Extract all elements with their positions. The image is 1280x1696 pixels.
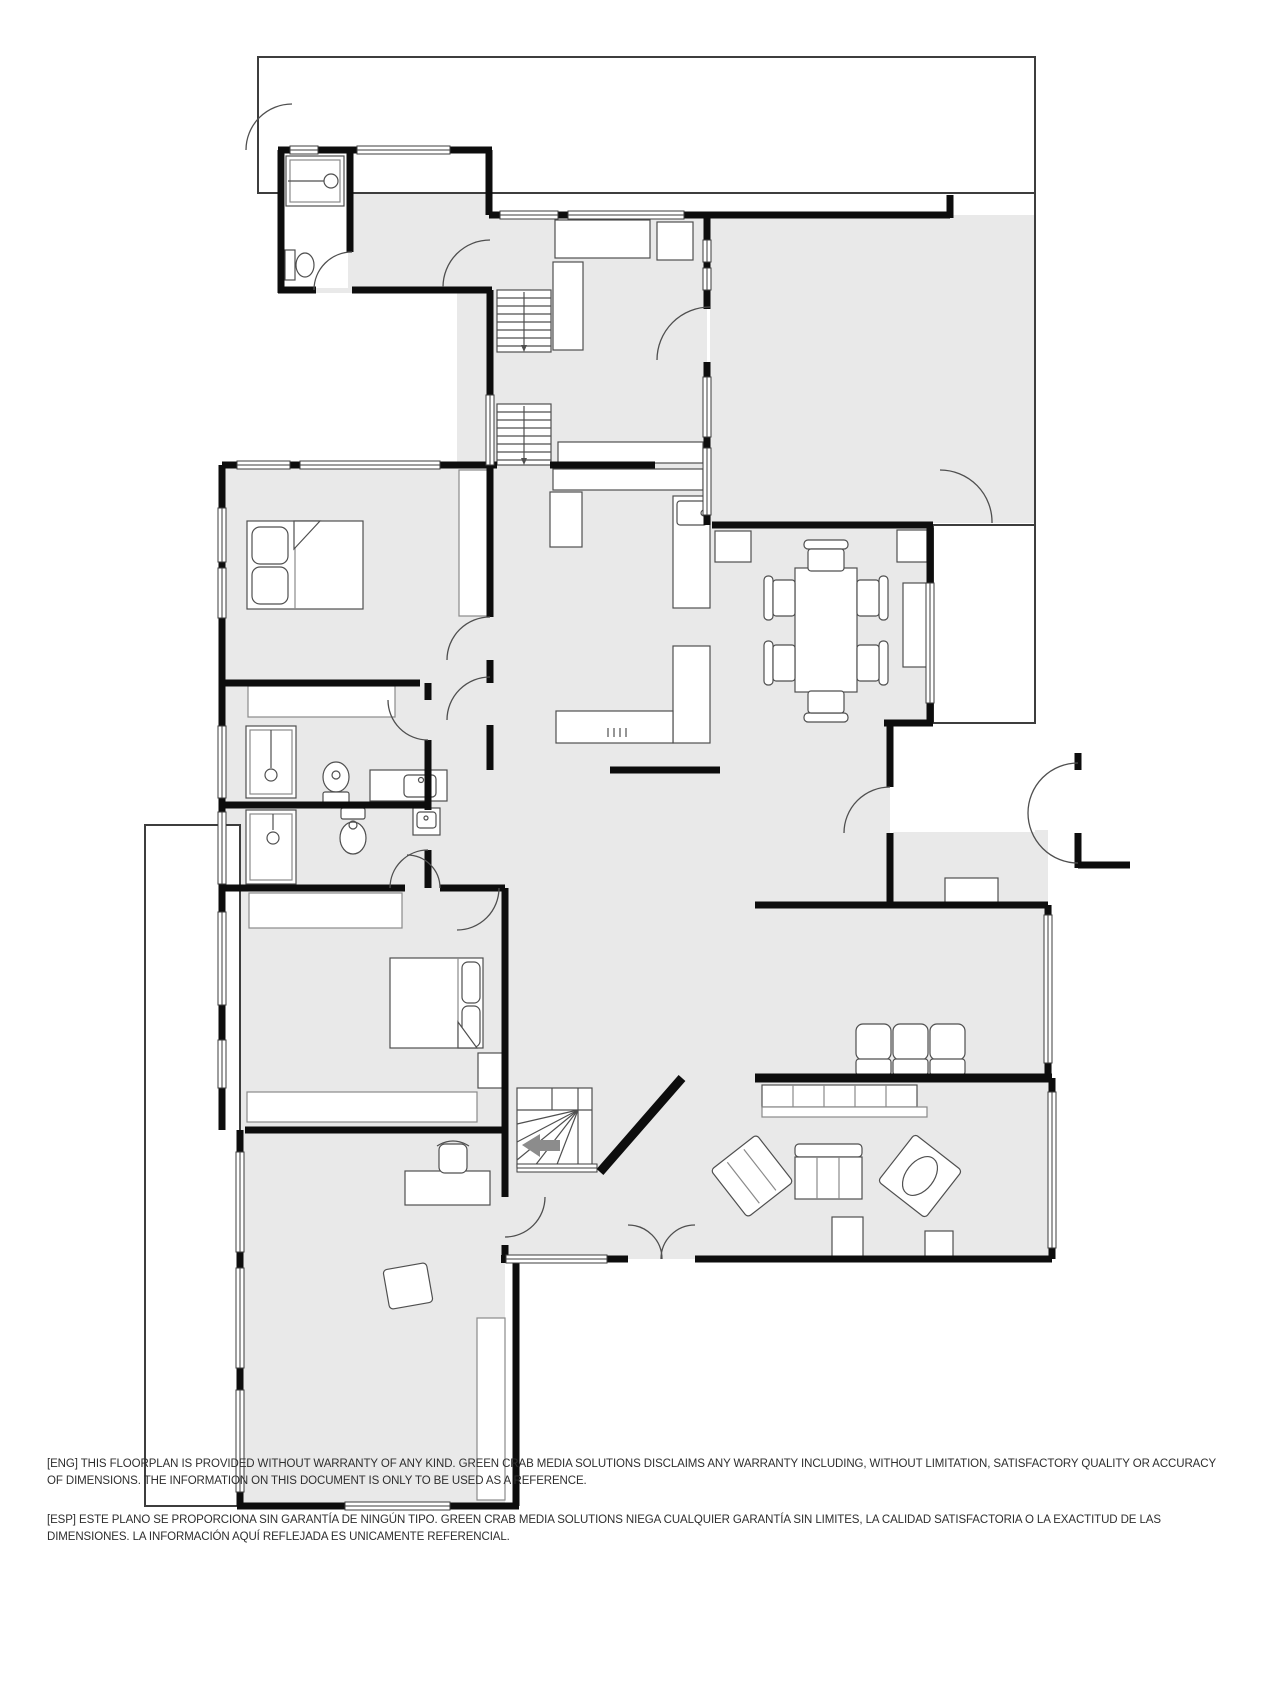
wall	[237, 1368, 244, 1390]
window	[500, 211, 558, 219]
wall	[704, 215, 711, 240]
wall	[486, 150, 493, 215]
office-chair	[439, 1144, 467, 1173]
wall	[1045, 905, 1052, 915]
kitchen-counter	[553, 469, 703, 490]
toilet-bowl	[296, 253, 314, 277]
wall	[695, 1256, 1052, 1263]
bedroom2-closet	[249, 893, 402, 928]
office-desk	[405, 1171, 490, 1205]
wall	[440, 885, 505, 892]
dining-chair	[808, 549, 844, 571]
wall	[352, 287, 492, 294]
console-table	[945, 878, 998, 903]
window	[703, 448, 711, 515]
wall	[502, 888, 509, 1197]
dining-chair-back	[804, 713, 848, 722]
window	[218, 726, 226, 798]
wall	[550, 462, 655, 469]
wall	[425, 740, 432, 810]
porch-right	[933, 525, 1035, 723]
kitchen-counter	[558, 442, 703, 463]
wall	[245, 1127, 505, 1134]
master-pillow	[252, 527, 288, 564]
wall	[704, 515, 711, 525]
dining-chair-back	[764, 641, 773, 685]
wall	[489, 212, 500, 219]
wall	[1075, 753, 1082, 770]
wall	[887, 833, 894, 905]
wall	[219, 1088, 226, 1130]
dining-chair-back	[764, 576, 773, 620]
dining-chair	[773, 580, 795, 616]
wall	[927, 528, 934, 583]
wall	[290, 462, 300, 469]
dining-chair-back	[804, 540, 848, 549]
deck-top	[258, 57, 1035, 193]
nightstand	[478, 1053, 503, 1088]
sofa-seat	[893, 1059, 928, 1075]
kitchen-counter	[673, 646, 710, 743]
wall	[487, 725, 494, 770]
window	[290, 146, 318, 154]
bedroom2-pillow	[462, 962, 480, 1003]
wall	[237, 1252, 244, 1268]
room-hall-center	[490, 770, 890, 905]
window	[506, 1255, 607, 1263]
wall	[222, 680, 420, 687]
window	[218, 812, 226, 884]
wall	[425, 683, 432, 700]
entry-landing	[893, 726, 1035, 832]
window	[703, 240, 711, 262]
wall	[219, 562, 226, 568]
floorplan-drawing	[0, 0, 1280, 1696]
window	[218, 912, 226, 1005]
sofa-seat	[856, 1059, 891, 1075]
window	[345, 1502, 450, 1510]
sideboard-shelf	[762, 1107, 927, 1117]
dining-chair	[773, 645, 795, 681]
master-pillow	[252, 567, 288, 604]
sofa-seat	[930, 1059, 965, 1075]
wall	[219, 465, 226, 508]
bedroom2-closet-2	[247, 1092, 477, 1122]
pantry-counter	[657, 222, 693, 260]
wall	[947, 195, 954, 218]
dining-cabinet	[897, 530, 927, 562]
side-table	[832, 1217, 863, 1257]
window	[218, 568, 226, 618]
disclaimer-english: [ENG] THIS FLOORPLAN IS PROVIDED WITHOUT…	[47, 1456, 1232, 1490]
sofa-back-cushion	[856, 1024, 891, 1060]
disclaimer-spanish: [ESP] ESTE PLANO SE PROPORCIONA SIN GARA…	[47, 1512, 1232, 1546]
dining-cabinet	[903, 583, 927, 667]
toilet-bowl	[340, 822, 366, 854]
dining-chair	[857, 645, 879, 681]
sofa-back-cushion	[930, 1024, 965, 1060]
loveseat-back	[795, 1144, 862, 1157]
window	[568, 211, 684, 219]
window	[236, 1268, 244, 1368]
dining-table	[795, 568, 857, 692]
wall	[487, 290, 494, 395]
wall-cabinet	[715, 531, 751, 562]
wall	[219, 618, 226, 726]
side-table	[925, 1231, 953, 1257]
window	[218, 508, 226, 562]
kitchen-counter-stove	[556, 711, 673, 743]
wall	[487, 465, 494, 617]
sideboard	[762, 1085, 917, 1107]
wall	[237, 1503, 345, 1510]
window	[237, 461, 290, 469]
toilet-bowl	[323, 762, 349, 792]
window	[1044, 915, 1052, 1063]
wall	[222, 802, 428, 809]
window	[703, 377, 711, 437]
wall	[704, 437, 711, 448]
wall	[278, 150, 285, 293]
wall	[425, 850, 432, 888]
wall	[487, 660, 494, 683]
window	[236, 1152, 244, 1252]
wall	[1049, 1078, 1056, 1092]
wall	[347, 150, 354, 252]
wall	[755, 1074, 1052, 1083]
wall	[704, 362, 711, 377]
pantry-counter	[553, 262, 583, 350]
floor-cushion	[383, 1262, 433, 1309]
wall	[219, 1005, 226, 1040]
door-arc-entry-upper	[1028, 763, 1078, 813]
shower-bath2	[246, 810, 296, 884]
window	[517, 1164, 597, 1172]
wall	[712, 522, 933, 529]
window	[926, 583, 934, 703]
wall	[704, 290, 711, 309]
wall	[450, 1503, 519, 1510]
window	[218, 1040, 226, 1088]
wall	[610, 767, 720, 774]
wall	[755, 902, 1048, 909]
sofa-back-cushion	[893, 1024, 928, 1060]
window	[357, 146, 450, 154]
dining-chair-back	[879, 641, 888, 685]
master-closet	[459, 470, 489, 616]
window	[486, 395, 494, 465]
wall	[222, 885, 405, 892]
toilet-tank	[285, 250, 295, 280]
wall	[558, 212, 568, 219]
toilet-tank	[341, 808, 365, 819]
wall	[887, 723, 894, 787]
wall	[607, 1256, 628, 1263]
dining-chair-back	[879, 576, 888, 620]
wall	[1078, 862, 1130, 869]
loveseat-seat	[795, 1157, 862, 1199]
floorplan-page: [ENG] THIS FLOORPLAN IS PROVIDED WITHOUT…	[0, 0, 1280, 1696]
wall	[704, 262, 711, 268]
window	[1048, 1092, 1056, 1248]
stair-direction-arrow	[540, 1140, 560, 1151]
pantry-counter	[555, 220, 650, 258]
window	[703, 268, 711, 290]
fridge	[550, 492, 582, 547]
dining-chair	[857, 580, 879, 616]
stairs-winder	[517, 1088, 592, 1167]
window	[300, 461, 440, 469]
dining-chair	[808, 691, 844, 713]
wall	[278, 287, 316, 294]
wall	[684, 212, 950, 219]
linen-closet	[248, 686, 395, 717]
wall	[237, 1130, 244, 1152]
